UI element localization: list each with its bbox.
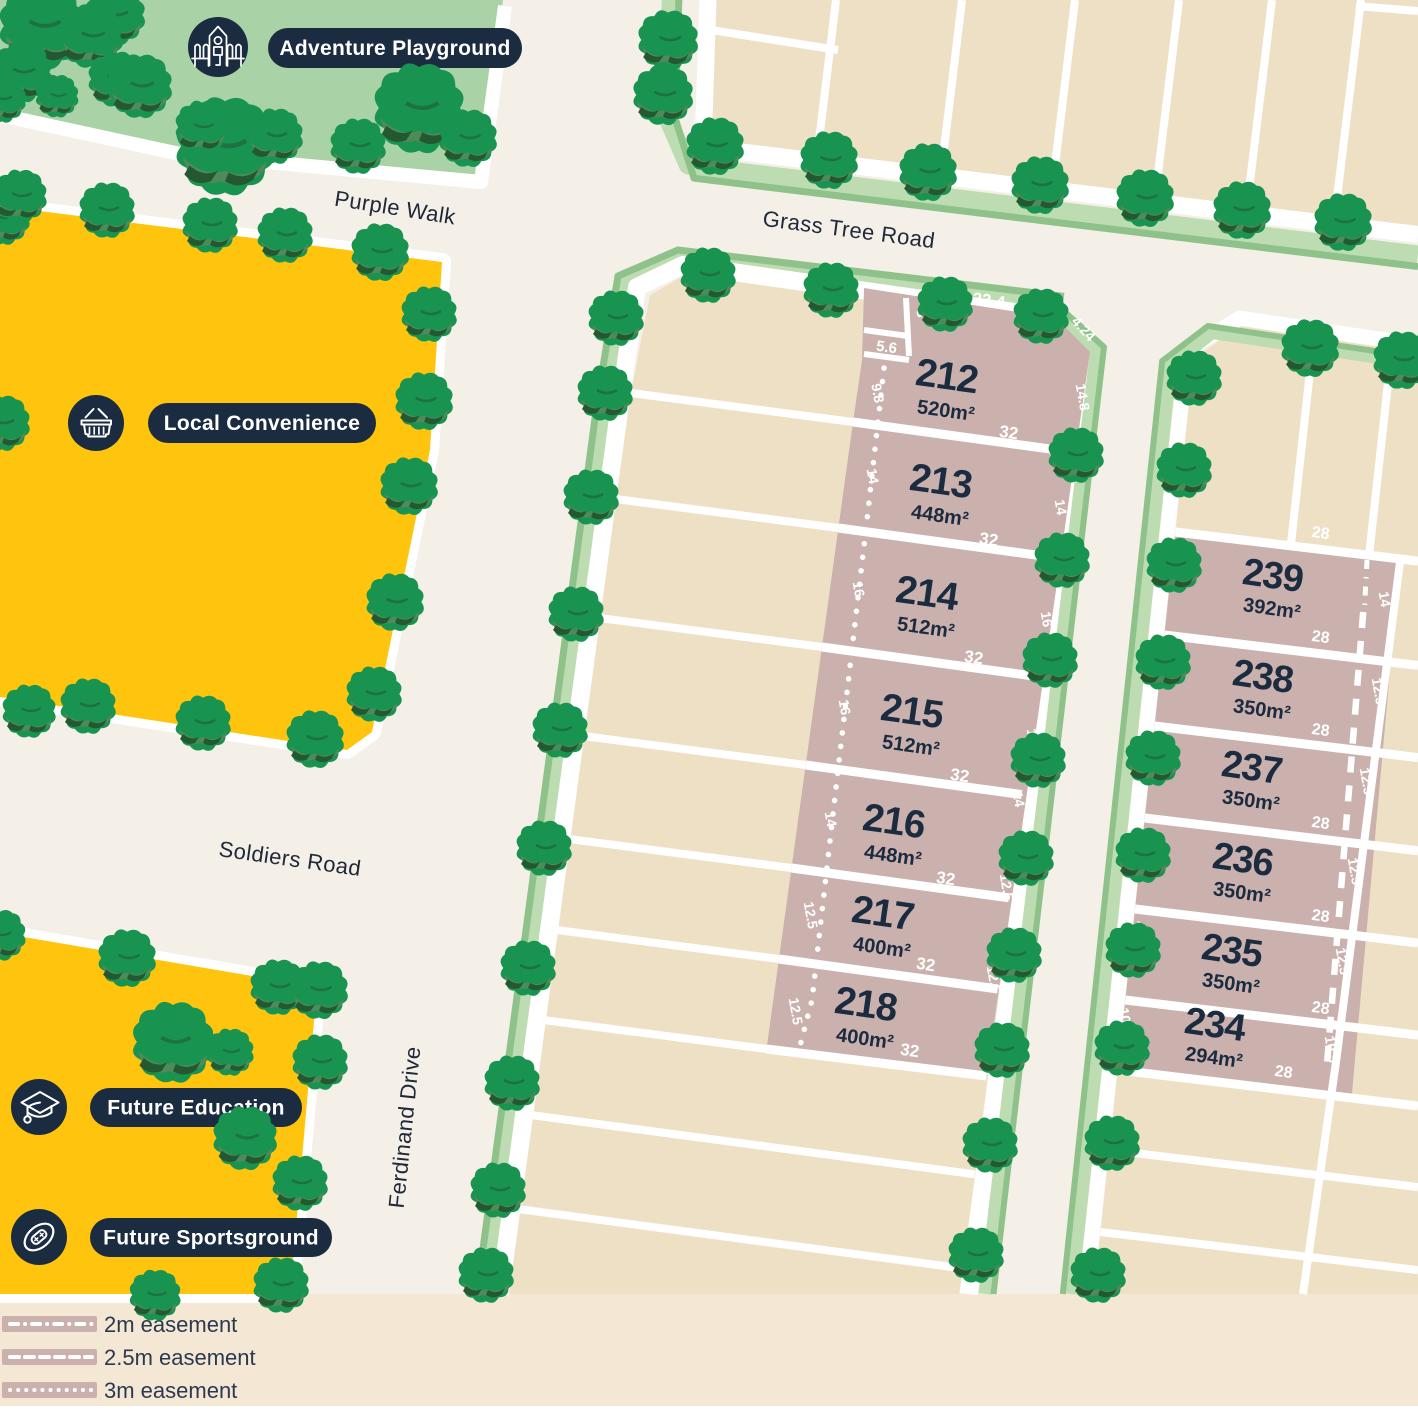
svg-text:32: 32 [935,868,956,889]
svg-text:234: 234 [1182,1000,1249,1050]
svg-text:32: 32 [963,647,984,668]
svg-text:Adventure Playground: Adventure Playground [279,37,510,60]
svg-text:Local Convenience: Local Convenience [164,412,361,435]
svg-text:9.8: 9.8 [868,382,887,404]
svg-text:28: 28 [1311,814,1331,833]
svg-text:2m easement: 2m easement [104,1312,237,1337]
svg-text:3m easement: 3m easement [104,1378,237,1403]
svg-text:2.5m easement: 2.5m easement [104,1345,256,1370]
svg-text:217: 217 [849,888,916,939]
svg-text:235: 235 [1199,926,1266,976]
svg-text:214: 214 [893,568,962,619]
svg-text:238: 238 [1230,652,1296,702]
svg-text:236: 236 [1210,835,1276,885]
svg-text:32: 32 [915,954,936,975]
svg-text:Future Sportsground: Future Sportsground [103,1227,319,1250]
svg-text:213: 213 [907,456,975,507]
svg-text:28: 28 [1311,999,1331,1018]
svg-text:14: 14 [822,810,840,828]
svg-text:32: 32 [899,1040,920,1061]
svg-text:28: 28 [1311,524,1331,543]
svg-text:16: 16 [836,698,854,716]
svg-text:32: 32 [998,422,1019,443]
svg-text:14: 14 [1010,790,1028,808]
svg-text:32: 32 [978,529,999,550]
svg-text:14: 14 [864,467,882,485]
svg-text:212: 212 [913,351,981,402]
svg-text:32: 32 [949,765,970,786]
svg-text:28: 28 [1311,907,1331,926]
svg-text:28: 28 [1274,1063,1294,1082]
svg-text:215: 215 [878,686,946,737]
svg-text:218: 218 [832,979,900,1030]
svg-text:28: 28 [1311,721,1331,740]
svg-text:237: 237 [1219,743,1285,793]
svg-text:239: 239 [1240,551,1306,601]
svg-text:28: 28 [1311,628,1331,647]
svg-text:14: 14 [1376,590,1394,608]
svg-text:5.6: 5.6 [875,338,898,358]
svg-text:216: 216 [860,796,928,847]
svg-text:16: 16 [850,580,868,598]
svg-text:14: 14 [1052,498,1070,516]
svg-text:16: 16 [1038,610,1056,628]
